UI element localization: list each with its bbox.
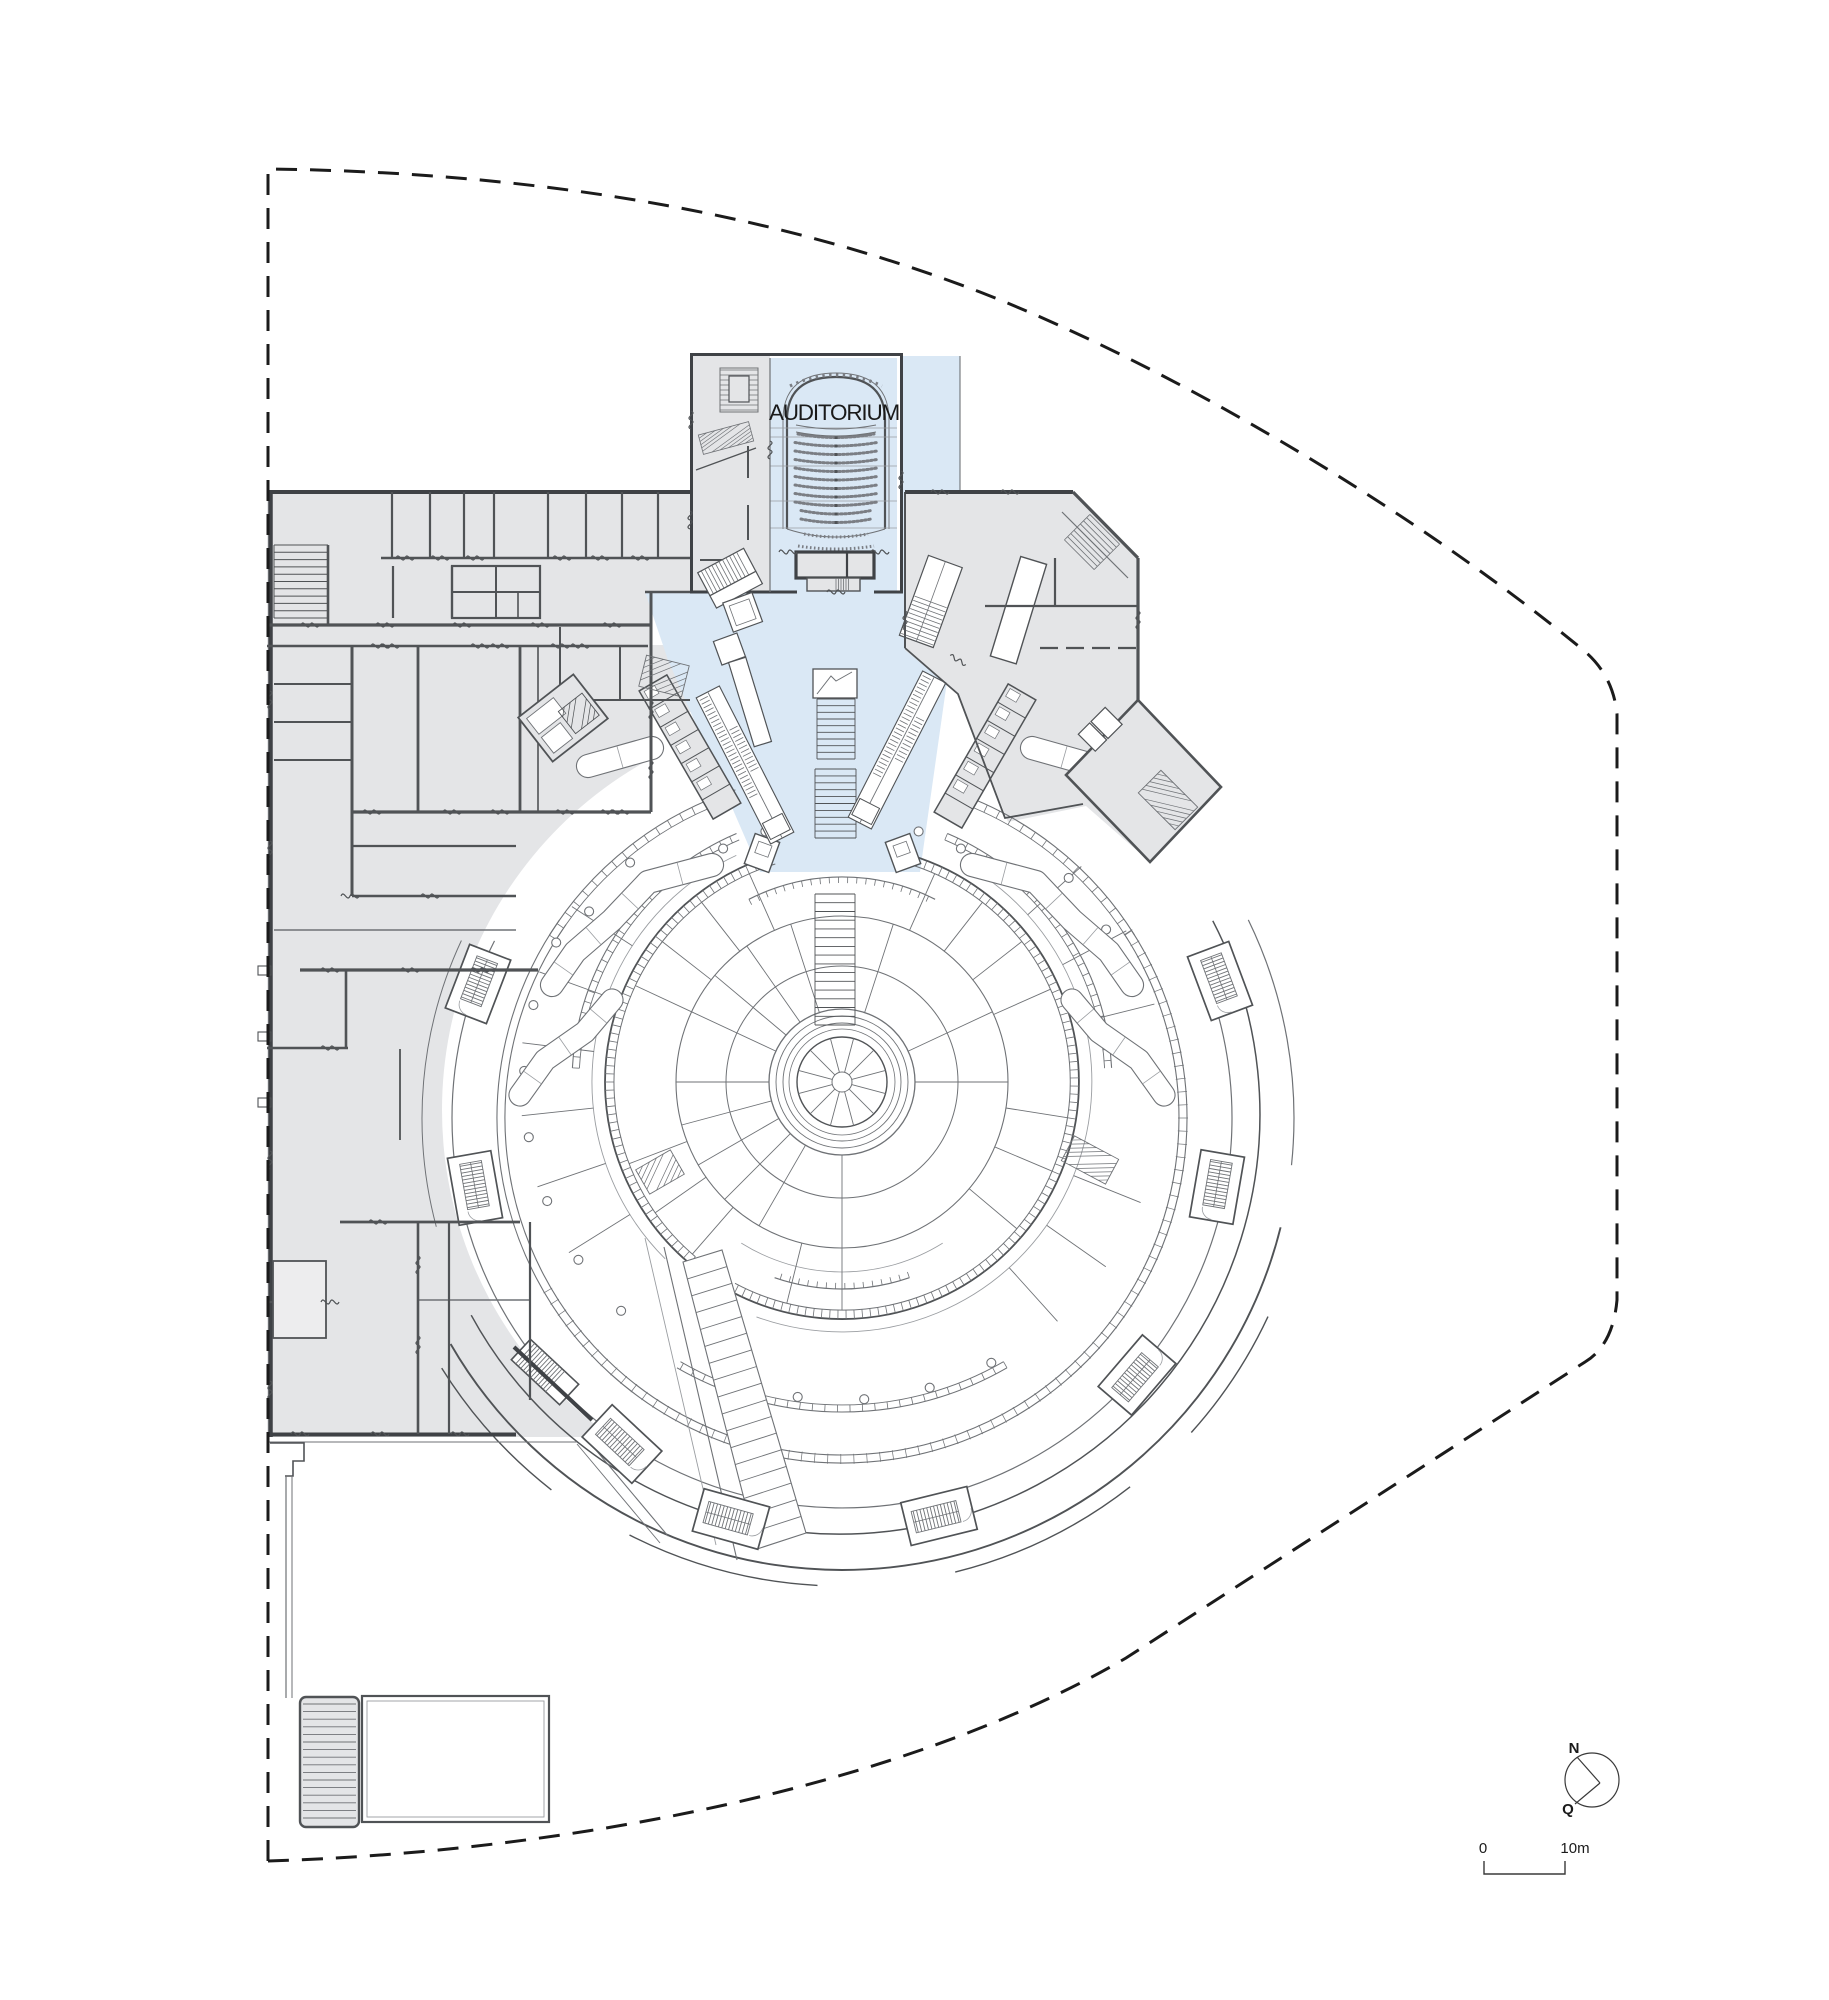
svg-text:10m: 10m xyxy=(1560,1840,1589,1857)
svg-text:N: N xyxy=(1569,1740,1580,1757)
svg-text:AUDITORIUM: AUDITORIUM xyxy=(769,400,899,425)
svg-text:Q: Q xyxy=(1562,1801,1574,1818)
svg-text:0: 0 xyxy=(1479,1840,1487,1857)
